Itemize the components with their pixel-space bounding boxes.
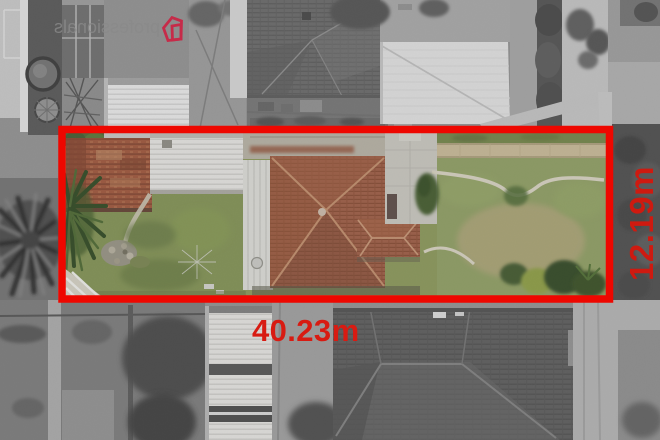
- svg-text:12.19m: 12.19m: [623, 166, 660, 281]
- svg-text:40.23m: 40.23m: [252, 313, 360, 348]
- svg-text:professionals: professionals: [54, 17, 160, 37]
